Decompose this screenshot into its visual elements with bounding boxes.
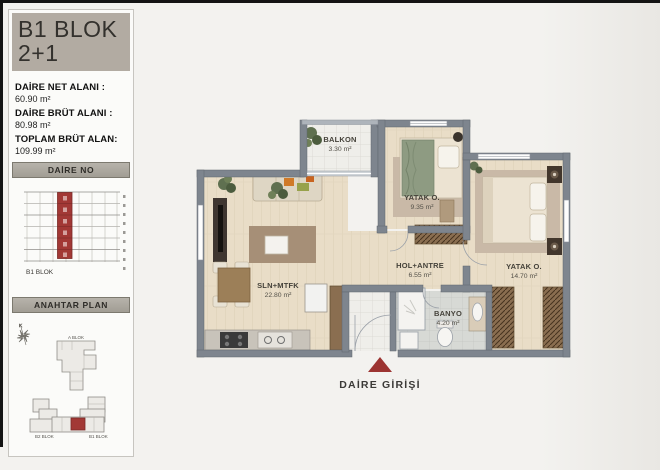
- scan-edge-top: [0, 0, 660, 3]
- toplam-area-value: 109.99 m²: [15, 146, 127, 156]
- svg-text:K: K: [19, 323, 22, 328]
- fridge: [305, 284, 327, 312]
- unit-type: 2+1: [18, 41, 124, 65]
- kitchen-counter: [205, 330, 310, 350]
- block-title: B1 BLOK: [18, 17, 124, 41]
- title-box: B1 BLOK 2+1: [12, 13, 130, 71]
- north-compass-icon: K: [17, 323, 30, 345]
- coffee-table: [265, 236, 288, 254]
- key-plan-block-a: [57, 341, 96, 390]
- svg-text:14.70 m²: 14.70 m²: [511, 273, 539, 280]
- key-plan-label-b2: B2 BLOK: [35, 434, 54, 439]
- selected-unit-column: [58, 193, 73, 259]
- area-summary: DAİRE NET ALANI : 60.90 m² DAİRE BRÜT AL…: [9, 71, 133, 156]
- key-plan-label-b1: B1 BLOK: [89, 434, 108, 439]
- net-area-value: 60.90 m²: [15, 94, 127, 104]
- daire-no-header: DAİRE NO: [12, 162, 130, 178]
- grid-block-label: B1 BLOK: [26, 269, 54, 276]
- floor-index-marks: [123, 195, 126, 270]
- entrance-label: DAİRE GİRİŞİ: [339, 378, 421, 391]
- brut-area-label: DAİRE BRÜT ALANI :: [15, 108, 127, 119]
- label-banyo: BANYO: [434, 309, 462, 318]
- tv: [218, 205, 223, 252]
- brut-area-value: 80.98 m²: [15, 120, 127, 130]
- toplam-area-label: TOPLAM BRÜT ALAN:: [15, 134, 127, 145]
- key-plan-block-b: [30, 397, 105, 432]
- anahtar-plan-header: ANAHTAR PLAN: [12, 297, 130, 313]
- label-yatak1: YATAK O.: [404, 193, 440, 202]
- key-plan: K A BLOK B2 BLOK B1 BLOK: [8, 318, 134, 448]
- floor-plan: BALKON 3.30 m² YATAK O. 9.35 m² YATAK O.…: [185, 100, 585, 410]
- label-yatak2: YATAK O.: [506, 262, 542, 271]
- label-salon: SLN+MTFK: [257, 281, 299, 290]
- svg-text:3.30 m²: 3.30 m²: [328, 146, 352, 153]
- entrance-arrow-icon: [368, 357, 392, 372]
- floorplan-page: { "header": { "block_title": "B1 BLOK", …: [0, 0, 660, 470]
- svg-text:4.20 m²: 4.20 m²: [436, 320, 460, 327]
- key-plan-label-a: A BLOK: [68, 335, 84, 340]
- scan-edge-left: [0, 0, 3, 447]
- svg-text:9.35 m²: 9.35 m²: [410, 204, 434, 211]
- net-area-label: DAİRE NET ALANI :: [15, 82, 127, 93]
- label-hol: HOL+ANTRE: [396, 261, 444, 270]
- svg-text:22.80 m²: 22.80 m²: [265, 292, 293, 299]
- key-plan-highlighted-unit: [71, 418, 85, 430]
- dining-set: [213, 262, 250, 307]
- label-balkon: BALKON: [323, 135, 356, 144]
- svg-text:6.55 m²: 6.55 m²: [408, 272, 432, 279]
- daire-no-grid: B1 BLOK: [8, 180, 134, 280]
- entrance-marker: DAİRE GİRİŞİ: [339, 357, 421, 391]
